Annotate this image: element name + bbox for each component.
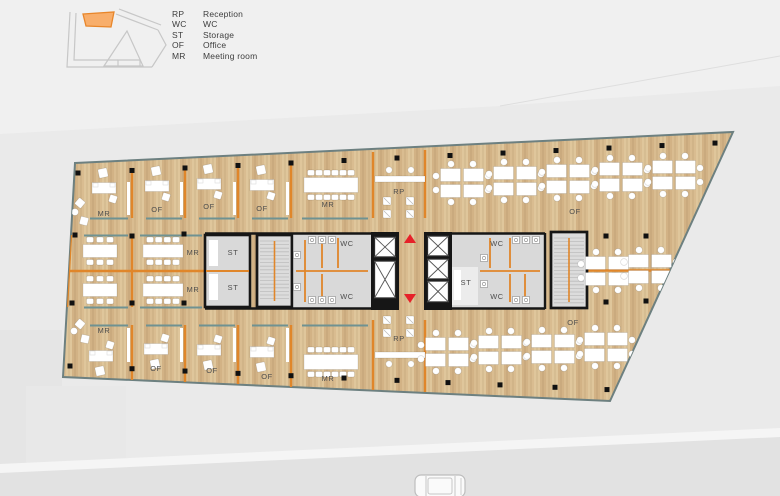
legend-abbr: MR (172, 51, 203, 61)
legend-abbr: OF (172, 40, 203, 50)
legend-abbr: RP (172, 9, 203, 19)
legend-row: STStorage (172, 30, 257, 40)
room-label-mr: MR (98, 209, 111, 218)
floor-plan-drawing: MROFOFOFMRRPOFMRMRSTSTWCWCSTWCWCMROFOFOF… (0, 0, 780, 496)
room-label-mr: MR (322, 374, 335, 383)
storage-block (205, 235, 250, 307)
meeting-table (83, 276, 117, 304)
room-label-st: ST (228, 248, 239, 257)
legend-label: Meeting room (203, 51, 257, 61)
room-label-of: OF (567, 318, 578, 327)
legend-abbr: WC (172, 19, 203, 29)
elevator-bank (371, 232, 399, 310)
legend-label: WC (203, 19, 218, 29)
room-label-of: OF (151, 205, 162, 214)
meeting-table (83, 237, 117, 265)
room-label-mr: MR (187, 248, 200, 257)
room-label-mr: MR (187, 285, 200, 294)
room-label-rp: RP (393, 334, 404, 343)
room-label-of: OF (206, 366, 217, 375)
legend: RPReception WCWC STStorage OFOffice MRMe… (172, 9, 257, 61)
room-label-mr: MR (98, 326, 111, 335)
elevator-bank (424, 232, 452, 310)
core-area (205, 232, 587, 310)
room-label-rp: RP (393, 187, 404, 196)
room-label-mr: MR (322, 200, 335, 209)
legend-abbr: ST (172, 30, 203, 40)
room-label-wc: WC (490, 239, 504, 248)
legend-row: WCWC (172, 19, 257, 29)
room-label-of: OF (150, 364, 161, 373)
room-label-of: OF (569, 207, 580, 216)
car (415, 475, 465, 496)
elevator (428, 281, 449, 302)
site-highlight (83, 12, 114, 27)
stair (257, 235, 292, 307)
room-label-wc: WC (490, 292, 504, 301)
elevator (428, 259, 449, 279)
legend-row: MRMeeting room (172, 51, 257, 61)
legend-label: Office (203, 40, 226, 50)
stair (551, 232, 587, 308)
room-label-wc: WC (340, 292, 354, 301)
room-label-of: OF (203, 202, 214, 211)
legend-row: OFOffice (172, 40, 257, 50)
room-label-wc: WC (340, 239, 354, 248)
elevator (375, 237, 396, 257)
legend-label: Storage (203, 30, 234, 40)
room-label-st: ST (228, 283, 239, 292)
legend-row: RPReception (172, 9, 257, 19)
elevator (375, 261, 396, 298)
room-label-of: OF (256, 204, 267, 213)
legend-label: Reception (203, 9, 243, 19)
site-plan-page: MROFOFOFMRRPOFMRMRSTSTWCWCSTWCWCMROFOFOF… (0, 0, 780, 496)
elevator (428, 236, 449, 256)
room-label-of: OF (261, 372, 272, 381)
room-label-st: ST (461, 278, 472, 287)
